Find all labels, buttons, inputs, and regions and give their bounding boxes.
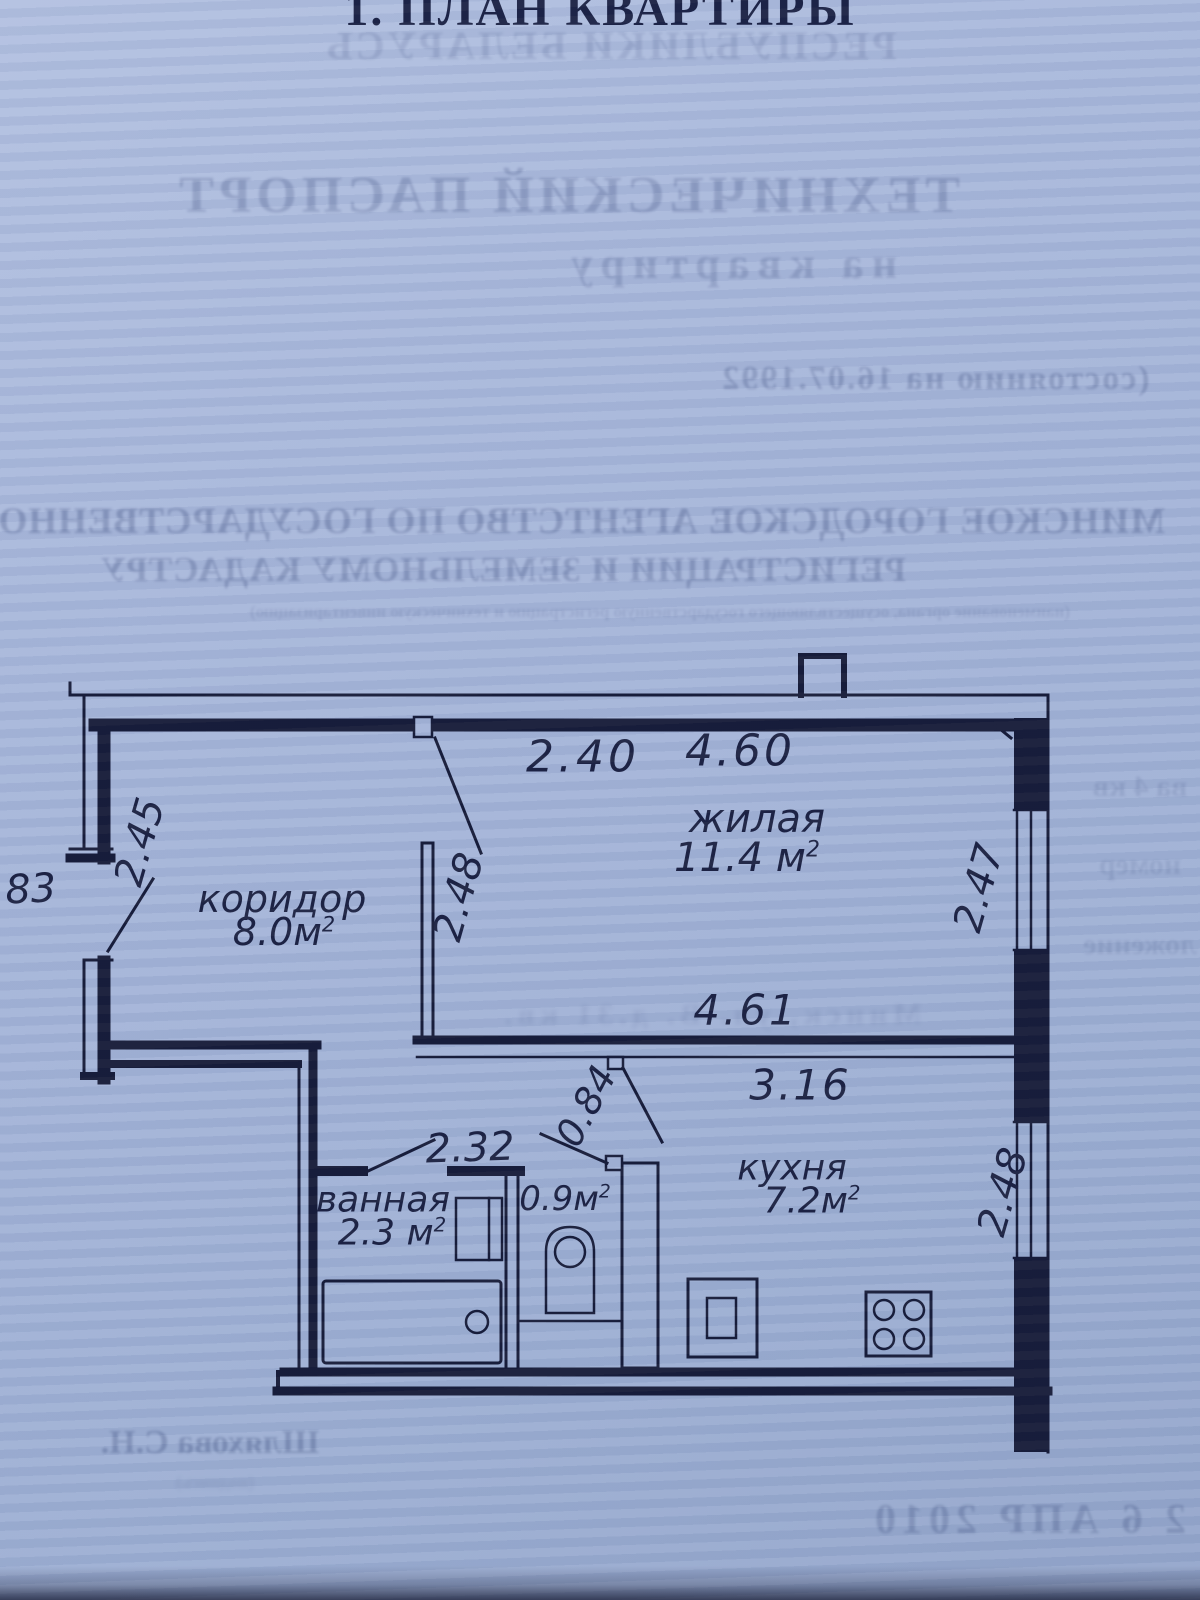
vent-shaft: [622, 1163, 658, 1368]
room-area-kitchen: 7.2м2: [763, 1181, 860, 1222]
room-area-living: 11.4 м2: [674, 835, 820, 881]
room-area-corridor: 8.0м2: [233, 910, 335, 954]
dim-top-left: 2.40: [526, 732, 640, 783]
toilet: [520, 1227, 620, 1321]
page-bottom-shadow: [0, 1566, 1200, 1600]
bathtub: [323, 1281, 501, 1363]
area-sup: 2: [806, 838, 820, 863]
dim-top-right: 4.60: [685, 726, 795, 777]
dim-entry-door: 183: [0, 865, 57, 915]
area-sup: 2: [599, 1182, 611, 1203]
kitchen-sink: [688, 1279, 757, 1357]
bath-door-leaf: [366, 1140, 434, 1172]
room-area-bath: 2.3 м2: [338, 1213, 446, 1254]
living-door-leaf: [435, 738, 481, 853]
dim-bath-width: 2.32: [425, 1123, 516, 1172]
area-value: 11.4 м: [674, 835, 806, 881]
area-sup: 2: [848, 1182, 861, 1205]
area-sup: 2: [434, 1214, 447, 1237]
room-area-wc: 0.9м2: [519, 1179, 611, 1219]
floor-plan-svg: [0, 0, 1200, 1600]
top-wall-bump: [801, 656, 844, 695]
area-value: 2.3 м: [338, 1213, 434, 1254]
scanned-passport-page: РЕСПУБЛИКИ БЕЛАРУСЬ ТЕХНИЧЕСКИЙ ПАСПОРТ …: [0, 0, 1200, 1600]
area-value: 8.0м: [233, 910, 322, 954]
area-value: 7.2м: [763, 1181, 847, 1222]
dim-mid-wall: 4.61: [693, 986, 799, 1035]
living-room-window: [1014, 810, 1048, 950]
dim-kitchen-width: 3.16: [749, 1061, 851, 1110]
kitchen-door-leaf: [623, 1068, 662, 1142]
wash-basin: [456, 1198, 502, 1260]
area-sup: 2: [322, 912, 335, 936]
stove: [866, 1292, 931, 1356]
area-value: 0.9м: [519, 1179, 599, 1219]
